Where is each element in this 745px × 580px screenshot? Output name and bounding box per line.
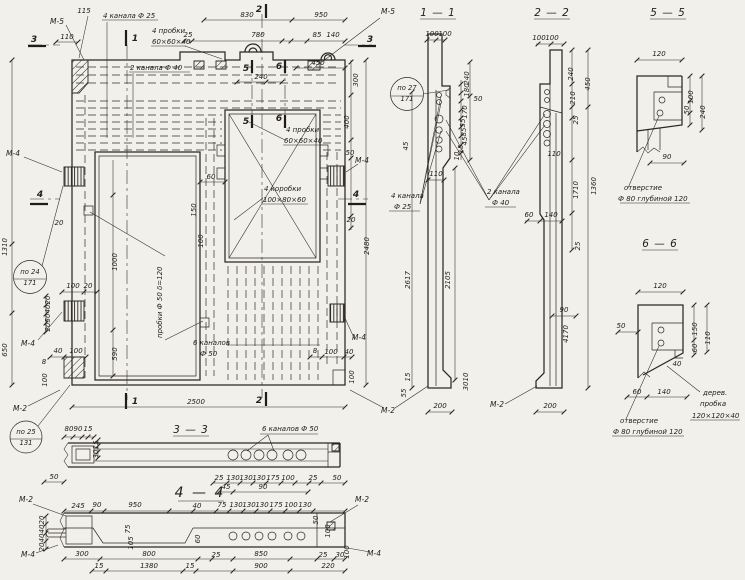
dim-label: 100: [69, 347, 83, 355]
dim-label: 245: [71, 502, 85, 510]
channel-hole: [545, 98, 550, 103]
dim-label: 90: [560, 306, 569, 314]
dim-label: 25: [319, 551, 328, 559]
callout-label: по 27: [397, 84, 417, 92]
annotation-label: пробка: [700, 400, 726, 408]
callout-label: 131: [20, 439, 33, 447]
dim-label: 100: [425, 30, 439, 38]
dim-label: 90: [259, 483, 268, 491]
dim-label: 20: [84, 282, 93, 290]
dim-label: 2480: [363, 237, 371, 255]
dim-label: 450: [584, 77, 592, 91]
dim-label: 25: [309, 474, 318, 482]
cut-mark-label: 4: [36, 190, 43, 200]
dim-label: 15: [95, 562, 104, 570]
dim-label: 140: [657, 388, 671, 396]
dim-label: 175: [269, 501, 283, 509]
annotation-label: Ф 80 глубиной 120: [618, 195, 688, 203]
leader: [667, 366, 700, 392]
dim-label: 240: [254, 73, 268, 81]
cut-mark-label: 2: [256, 396, 262, 406]
dim-label: 100: [66, 282, 80, 290]
annotation-label: пробки Ф 50 δ=120: [156, 266, 164, 338]
annotation-label: 2 канала: [487, 188, 520, 196]
dim-label: 130: [229, 501, 243, 509]
dim-label: 780: [251, 31, 265, 39]
annotation-label: Ф 80 глубиной 120: [613, 428, 683, 436]
corner-corbel: [72, 60, 88, 93]
end-corbel: [66, 516, 92, 544]
dim-label: 60: [525, 211, 534, 219]
marker-label: М-4: [367, 549, 381, 558]
leader: [626, 346, 659, 419]
lifting-loop-left: [245, 44, 261, 52]
dim-label: 20: [38, 542, 46, 551]
section-title: 5 — 5: [650, 7, 686, 19]
section-1-1: [420, 34, 489, 388]
channel-f50-hole: [228, 450, 238, 460]
end-plug-detail: [72, 446, 94, 463]
channel-hole: [436, 146, 442, 152]
annotation-label: отверстие: [624, 184, 662, 192]
dim-label: 20: [38, 515, 46, 524]
dim-label: 850: [254, 550, 268, 558]
jamb-anchor: [217, 168, 225, 179]
anchor-plate-m4: [64, 167, 84, 186]
marker-label: М-2: [381, 406, 395, 415]
channel-hole: [436, 127, 442, 133]
channel-hole: [544, 121, 551, 128]
detail-callout-circle: [391, 78, 424, 111]
dim-label: 300: [75, 550, 89, 558]
channel-hole: [544, 131, 551, 138]
dim-label: 130: [252, 474, 266, 482]
section-6-6: [626, 305, 700, 419]
dim-label: 1380: [140, 562, 158, 570]
dim-label: 20: [347, 216, 356, 224]
annotation-label: 4 пробки: [286, 126, 320, 134]
blueprint-sheet: 115М-511034 канала Ф 254 пробки60×60×402…: [0, 0, 745, 580]
corner-notch: [333, 370, 345, 385]
dim-label: 45: [461, 136, 469, 145]
dim-label: 90: [93, 501, 102, 509]
dim-label: 50: [683, 105, 691, 114]
callout-label: по 24: [20, 268, 39, 276]
marker-label: М-2: [490, 400, 504, 409]
door-recess: [93, 528, 193, 543]
dim-label: 40: [345, 348, 354, 356]
section-title: 2 — 2: [534, 7, 570, 19]
dim-label: 60: [194, 534, 202, 543]
hole-f80: [659, 97, 665, 103]
dim-label: 50: [346, 149, 355, 157]
cut-mark-label: 3: [367, 35, 373, 45]
panel-working-drawing: 115М-511034 канала Ф 254 пробки60×60×402…: [0, 0, 745, 580]
dim-label: 30: [462, 381, 470, 390]
dim-label: 200: [543, 402, 557, 410]
section-title: 4 — 4: [175, 485, 226, 501]
marker-label: М-2: [13, 404, 27, 413]
dim-label: 100: [197, 234, 205, 248]
marker-label: М-2: [19, 495, 33, 504]
dim-label: 25: [212, 551, 221, 559]
annotation-label: 4 коробки: [264, 185, 301, 193]
cut-mark-label: 5: [243, 64, 249, 74]
annotation-label: 60×60×40: [284, 137, 323, 145]
annotation-label: 6 каналов Ф 50: [262, 425, 319, 433]
dim-label: 25: [574, 241, 582, 250]
annotation-label: дерев.: [702, 389, 727, 397]
dim-label: 110: [60, 33, 74, 41]
dim-label: 200: [433, 402, 447, 410]
anchor-plate-m4: [328, 166, 344, 186]
callout-label: 171: [401, 95, 414, 103]
dim-label: 100: [343, 545, 351, 559]
callout-label: 171: [24, 279, 37, 287]
dim-label: 110: [547, 150, 561, 158]
dim-label: 25: [215, 474, 224, 482]
dim-label: 900: [254, 562, 268, 570]
dim-label: 150: [691, 322, 699, 336]
dim-label: 40: [38, 533, 46, 542]
dim-label: 650: [1, 343, 9, 357]
dim-label: 1000: [111, 253, 119, 271]
dim-label: 90: [663, 153, 672, 161]
anchor-plate-m4: [64, 301, 84, 321]
dim-label: 15: [404, 372, 412, 381]
dim-label: 115: [77, 7, 91, 15]
dim-label: 150: [190, 203, 198, 217]
channel-f50-hole: [284, 532, 292, 540]
channel-f50-hole: [283, 450, 293, 460]
dim-label: 830: [240, 11, 254, 19]
dim-label: 75: [124, 524, 132, 533]
cut-mark-label: 6: [276, 62, 282, 72]
marker-label: М-2: [355, 495, 369, 504]
dim-label: 590: [111, 347, 119, 361]
dim-label: 15: [186, 562, 195, 570]
dim-label: 240: [463, 71, 471, 85]
dim-label: 130: [298, 501, 312, 509]
callout-label: по 25: [16, 428, 35, 436]
marker-label: М-4: [355, 156, 369, 165]
section-3-3: [64, 435, 340, 467]
annotation-label: 2 канала Ф 40: [130, 64, 183, 72]
dim-label: 950: [314, 11, 328, 19]
dim-label: 25: [184, 31, 193, 39]
dim-label: 100: [532, 34, 546, 42]
dim-label: 120: [652, 50, 666, 58]
dim-label: 1710: [572, 181, 580, 199]
dim-label: 8: [313, 347, 318, 355]
dim-label: 15: [84, 425, 93, 433]
dim-label: 100: [284, 501, 298, 509]
detail-callout-circle: [14, 261, 47, 294]
annotation-label: 120×120×40: [692, 412, 740, 420]
dim-label: 240: [699, 105, 707, 119]
dim-label: 90: [74, 425, 83, 433]
dim-label: 120: [653, 282, 667, 290]
dim-label: 55: [459, 118, 467, 127]
dim-label: 60: [207, 173, 216, 181]
channel-f50-hole: [242, 532, 250, 540]
dim-label: 130: [226, 474, 240, 482]
dim-label: 130: [239, 474, 253, 482]
channel-f50-hole: [268, 532, 276, 540]
dim-label: 130: [255, 501, 269, 509]
embed-plate: [216, 61, 226, 69]
end-plug-detail-inner: [76, 449, 90, 460]
main-view: [64, 44, 345, 385]
dim-label: 10: [453, 151, 461, 160]
dim-label: 1360: [590, 177, 598, 195]
dim-label: 950: [128, 501, 142, 509]
leader: [628, 116, 659, 188]
section-2-2: [489, 50, 562, 388]
dim-label: 50: [312, 515, 320, 524]
cut-mark-label: 5: [243, 117, 249, 127]
dim-label: 50: [333, 474, 342, 482]
dim-label: 15: [92, 440, 100, 449]
hole-f80: [658, 327, 664, 333]
annotation-label: Ф 40: [492, 199, 510, 207]
channel-f50-hole: [229, 532, 237, 540]
dim-label: 450: [311, 59, 325, 67]
dim-label: 40: [54, 347, 63, 355]
dim-label: 140: [544, 211, 558, 219]
channel-f50-hole: [267, 450, 277, 460]
dim-label: 100: [324, 348, 338, 356]
annotation-label: 60×60×40: [152, 38, 191, 46]
dim-label: 2105: [444, 271, 452, 289]
annotation-label: Ф 25: [394, 203, 412, 211]
dim-label: 175: [266, 474, 280, 482]
channel-f50-hole: [297, 532, 305, 540]
dim-label: 20: [44, 322, 52, 331]
section-5-5: [628, 76, 682, 188]
channel-f50-hole: [241, 450, 251, 460]
dim-label: 85: [313, 31, 322, 39]
anchor-plate-m2: [64, 357, 84, 378]
cut-mark-label: 2: [256, 5, 262, 15]
dim-label: 2500: [187, 398, 205, 406]
dim-label: 210: [569, 91, 577, 105]
dim-label: 2617: [404, 271, 412, 289]
dim-label: 40: [193, 502, 202, 510]
annotation-label: 4 канала Ф 25: [103, 12, 156, 20]
hole-f80: [658, 340, 664, 346]
label-layer: 115М-511034 канала Ф 254 пробки60×60×402…: [1, 5, 740, 570]
dim-label: 60: [691, 343, 699, 352]
dim-label: 4170: [562, 325, 570, 343]
annotation-label: 4 пробки: [152, 27, 186, 35]
cut-mark-label: 4: [352, 190, 359, 200]
dim-label: 10: [462, 372, 470, 381]
channel-f50-hole: [254, 450, 264, 460]
annotation-label: 6 каналов: [193, 339, 230, 347]
dim-label: 110: [429, 170, 443, 178]
marker-label: М-5: [381, 7, 395, 16]
cut-mark-label: 6: [276, 114, 282, 124]
dim-label: 55: [400, 388, 408, 397]
channel-hole: [545, 90, 550, 95]
dim-label: 40: [38, 524, 46, 533]
section-title: 3 — 3: [173, 424, 209, 436]
dim-label: 100: [324, 524, 332, 538]
dim-label: 60: [633, 388, 642, 396]
dim-label: 40: [44, 304, 52, 313]
dim-label: 8: [42, 358, 47, 366]
dim-label: 800: [142, 550, 156, 558]
dim-label: 180: [463, 83, 471, 97]
dim-label: 140: [326, 31, 340, 39]
marker-label: М-4: [6, 149, 20, 158]
dim-label: 20: [44, 295, 52, 304]
end-hatch: [332, 444, 339, 451]
dim-label: 100: [687, 90, 695, 104]
dim-label: 50: [617, 322, 626, 330]
annotation-label: 100×80×60: [263, 196, 306, 204]
section-title: 1 — 1: [420, 7, 456, 19]
dim-label: 30: [92, 449, 100, 458]
dim-label: 170: [461, 105, 469, 119]
dim-label: 25: [572, 115, 580, 124]
dim-label: 240: [567, 67, 575, 81]
annotation-label: Ф 50: [200, 350, 218, 358]
dim-label: 100: [41, 373, 49, 387]
dim-label: 50: [44, 313, 52, 322]
dim-label: 20: [55, 219, 64, 227]
marker-label: М-4: [352, 333, 366, 342]
dim-label: 50: [474, 95, 483, 103]
dim-label: 100: [438, 30, 452, 38]
dim-label: 100: [545, 34, 559, 42]
channel-hole: [544, 140, 550, 146]
annotation-label: отверстие: [620, 417, 658, 425]
jamb-anchor: [217, 145, 225, 156]
annotation-label: 4 канала: [391, 192, 424, 200]
dim-label: 220: [321, 562, 335, 570]
marker-label: М-5: [50, 17, 64, 26]
detail-callout-circle: [10, 421, 42, 453]
embed-plate: [194, 61, 204, 69]
dim-label: 300: [352, 73, 360, 87]
cut-mark-label: 1: [132, 34, 138, 44]
hole-f80: [657, 110, 663, 116]
channel-f50-hole: [255, 532, 263, 540]
cut-mark-label: 3: [31, 35, 37, 45]
marker-label: М-4: [21, 339, 35, 348]
dim-label: 110: [704, 331, 712, 345]
cut-mark-label: 1: [132, 397, 138, 407]
dim-label: 45: [402, 141, 410, 150]
dim-label: 100: [281, 474, 295, 482]
plug-square: [200, 318, 209, 327]
dim-label: 130: [242, 501, 256, 509]
leaders-and-underlines: [24, 16, 740, 553]
section-title: 6 — 6: [642, 238, 678, 250]
dim-label: 1310: [1, 238, 9, 256]
dim-label: 50: [50, 473, 59, 481]
dim-label: 400: [343, 115, 351, 129]
channel-f50-hole: [296, 450, 306, 460]
dim-label: 100: [348, 370, 356, 384]
dim-label: 105: [127, 536, 135, 550]
dim-label: 40: [673, 360, 682, 368]
dim-label: 85: [460, 127, 468, 136]
dim-label: 75: [218, 501, 227, 509]
marker-label: М-4: [21, 550, 35, 559]
channel-hole: [544, 111, 551, 118]
